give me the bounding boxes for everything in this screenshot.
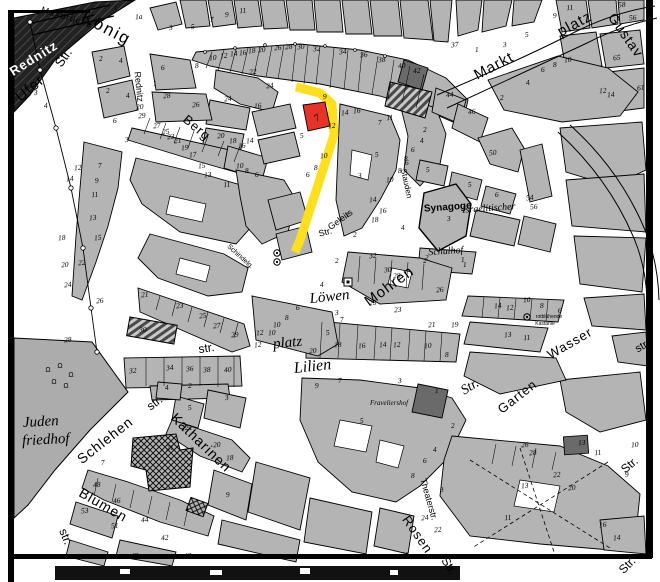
street-label: Lilien <box>292 356 332 377</box>
house-number: 27 <box>153 121 162 131</box>
house-number: 14 <box>494 301 503 311</box>
house-number: 61 <box>637 83 645 93</box>
house-number: 22 <box>553 470 562 480</box>
house-number: 5 <box>300 131 305 140</box>
house-number: 32 <box>312 44 322 54</box>
house-number: 18 <box>371 215 380 225</box>
grave-icon: Ω <box>68 372 73 379</box>
house-number: 56 <box>629 13 638 23</box>
house-number: 32 <box>368 251 378 261</box>
place-label: Juden <box>22 413 59 431</box>
house-number: 13 <box>89 213 98 223</box>
house-number: 34 <box>165 363 175 373</box>
house-number: 36 <box>185 364 195 374</box>
house-number: 12 <box>74 163 83 173</box>
house-number: 14 <box>246 136 255 146</box>
house-number: 10 <box>209 53 218 63</box>
street-label: Str. <box>618 454 641 476</box>
house-number: 18 <box>334 340 343 350</box>
grave-icon: Ω <box>51 379 56 386</box>
house-number: 56 <box>530 202 539 212</box>
house-number: 10 <box>424 341 433 351</box>
map-page: 7 MaxbrückeKönigStr.UferRednitzBergMarkt… <box>0 0 660 582</box>
house-number: 12 <box>254 340 263 350</box>
bottom-strip <box>55 566 460 580</box>
house-number: 29 <box>138 111 147 121</box>
tree-icon <box>276 252 278 254</box>
house-number: 10 <box>268 328 277 338</box>
house-number: 12 <box>393 340 402 350</box>
house-number: 1 <box>153 79 158 88</box>
house-number: 14 <box>66 174 75 184</box>
house-number: 18 <box>229 136 238 146</box>
house-number: 7 <box>338 376 343 385</box>
house-number: 11 <box>223 180 231 190</box>
monument-icon <box>347 281 350 284</box>
house-number: 14 <box>341 108 350 118</box>
house-number: 34 <box>338 47 348 57</box>
house-number: 14 <box>607 90 616 100</box>
house-number: 58 <box>618 0 627 9</box>
house-number: 23 <box>394 305 403 315</box>
house-number: 24 <box>266 81 275 91</box>
house-number: 44 <box>446 90 455 100</box>
house-number: 38 <box>377 55 387 65</box>
house-number: 24 <box>224 94 233 104</box>
house-number: 21 <box>166 443 174 453</box>
house-number: 18 <box>248 46 257 56</box>
house-number: 11 <box>566 3 574 13</box>
house-number: 14 <box>613 533 622 543</box>
tree-icon <box>276 261 278 263</box>
house-number: 16 <box>353 106 362 116</box>
house-number: 8 <box>398 166 403 175</box>
grave-icon: Ω <box>57 363 62 370</box>
house-number: 14 <box>379 340 388 350</box>
house-number: 50 <box>489 148 498 158</box>
house-number: 36 <box>359 50 369 60</box>
house-number: 6 <box>113 116 118 125</box>
house-number: 21 <box>141 290 149 300</box>
house-number: 16 <box>239 48 248 58</box>
house-number: 20 <box>136 102 145 112</box>
house-number: 29 <box>231 330 240 340</box>
house-number: 14 <box>230 49 239 59</box>
house-number: 21 <box>401 550 409 560</box>
house-number: 4 <box>401 223 406 232</box>
house-number: 5 <box>525 30 530 39</box>
house-number: 17 <box>189 150 198 160</box>
house-number: 20 <box>217 131 226 141</box>
house-number: 1 <box>346 210 351 219</box>
house-number: 11 <box>504 513 512 523</box>
house-number: 25 <box>199 311 208 321</box>
house-number: 1 <box>463 260 468 269</box>
house-number: 12 <box>256 328 265 338</box>
house-number: 18 <box>58 233 67 243</box>
house-number: 27 <box>213 321 222 331</box>
street-label: Wasser <box>545 324 595 362</box>
house-number: 10 <box>386 175 395 185</box>
house-number: 24 <box>421 513 430 523</box>
house-number: 22 <box>434 525 443 535</box>
house-number: 26 <box>96 296 105 306</box>
house-number: 42 <box>161 533 170 543</box>
house-number: 16 <box>379 206 388 216</box>
house-number: 1 <box>114 3 119 12</box>
house-number: 11 <box>239 6 247 16</box>
house-number: 46 <box>468 107 477 117</box>
house-number: 16 <box>358 341 367 351</box>
street-label: platz <box>271 334 303 353</box>
house-number: 16 <box>254 101 263 111</box>
house-number: 4 <box>320 280 325 289</box>
house-number: 30 <box>138 325 148 335</box>
house-number: 22 <box>249 67 258 77</box>
house-number: 46 <box>113 496 122 506</box>
house-number: 13 <box>204 170 213 180</box>
house-number: 6 <box>296 303 301 312</box>
house-number: 32 <box>128 366 138 376</box>
house-number: 11 <box>91 190 99 200</box>
house-number: 11 <box>594 448 602 458</box>
house-number: 12 <box>220 51 229 61</box>
house-number: 20 <box>568 483 577 493</box>
house-number: 15 <box>198 161 207 171</box>
house-number: 1 <box>475 45 480 54</box>
house-number: 3 <box>124 135 130 144</box>
house-number: 25 <box>369 298 378 308</box>
house-number: 13 <box>504 330 513 340</box>
house-number: 19 <box>451 320 460 330</box>
house-number: 15 <box>94 233 103 243</box>
house-number: 24 <box>64 280 73 290</box>
grave-icon: Ω <box>63 383 68 390</box>
house-number: 54 <box>526 193 535 203</box>
house-number: 10 <box>564 55 573 65</box>
house-number: 18 <box>226 453 235 463</box>
house-number: 1a <box>135 12 144 22</box>
city-map: 7 MaxbrückeKönigStr.UferRednitzBergMarkt… <box>0 0 660 582</box>
house-number: 22 <box>181 423 190 433</box>
house-number: 2 <box>335 256 340 265</box>
house-number: 2 <box>353 230 358 239</box>
house-number: 13 <box>578 438 587 448</box>
house-number: 30 <box>383 265 393 275</box>
house-number: 3 <box>502 40 508 49</box>
house-number: 6 <box>306 170 311 179</box>
house-number: 10 <box>320 151 329 161</box>
house-number: 10 <box>236 161 245 171</box>
house-number: 12 <box>506 303 515 313</box>
house-number: 11 <box>523 333 531 343</box>
synagogue-building <box>419 184 471 251</box>
house-number: 23 <box>176 301 185 311</box>
house-number: 3 <box>397 376 403 385</box>
house-number: 37 <box>450 40 460 50</box>
house-number: 42 <box>413 66 422 76</box>
house-number: 40 <box>184 551 193 561</box>
house-number: 26 <box>436 285 445 295</box>
house-number: 3 <box>334 308 340 317</box>
house-number: 26 <box>274 43 283 53</box>
house-number: 38 <box>202 365 212 375</box>
house-number: 16 <box>238 141 247 151</box>
house-number: 1 <box>435 386 440 395</box>
street-label: str. <box>198 340 216 356</box>
street-label: Str. <box>317 226 333 239</box>
street-label: Löwen <box>308 287 350 307</box>
house-number: 16 <box>599 520 608 530</box>
house-number: 65 <box>613 53 622 63</box>
house-number: 28 <box>163 91 172 101</box>
house-number: 40 <box>398 61 407 71</box>
house-number: 21 <box>428 320 436 330</box>
house-number: 9 <box>553 11 558 20</box>
house-number: 28 <box>393 271 402 281</box>
house-number: 53 <box>81 506 90 516</box>
house-number: 7 <box>340 315 345 324</box>
place-label: Fraveliershof <box>369 399 409 407</box>
house-number: 11 <box>386 113 394 123</box>
house-number: 51 <box>111 521 119 531</box>
grave-icon: Ω <box>45 367 50 374</box>
house-number: 20 <box>309 346 318 356</box>
place-label: Kastanie <box>535 321 555 327</box>
house-number: 44 <box>141 515 150 525</box>
house-number: 28 <box>285 42 294 52</box>
house-number: 10 <box>631 440 640 450</box>
house-number: 13 <box>521 481 530 491</box>
house-number: 48 <box>93 480 102 490</box>
house-number: 28 <box>529 448 538 458</box>
house-number: 10 <box>523 295 532 305</box>
house-number: 8 <box>314 163 319 172</box>
house-number: 20 <box>213 440 222 450</box>
house-number: 4 <box>44 101 49 110</box>
house-number: 7 <box>101 458 106 467</box>
house-number: 49 <box>131 551 140 561</box>
tree-icon <box>526 316 528 318</box>
house-number: 26 <box>192 100 201 110</box>
house-number: 14 <box>369 195 378 205</box>
place-label: friedhof <box>22 431 72 450</box>
house-number: 28 <box>64 335 73 345</box>
house-number: 20 <box>258 45 267 55</box>
house-number: 30 <box>296 42 306 52</box>
house-number: 20 <box>61 260 70 270</box>
house-number: 12 <box>328 121 337 131</box>
house-number: 22 <box>78 258 87 268</box>
house-number: 40 <box>224 365 233 375</box>
